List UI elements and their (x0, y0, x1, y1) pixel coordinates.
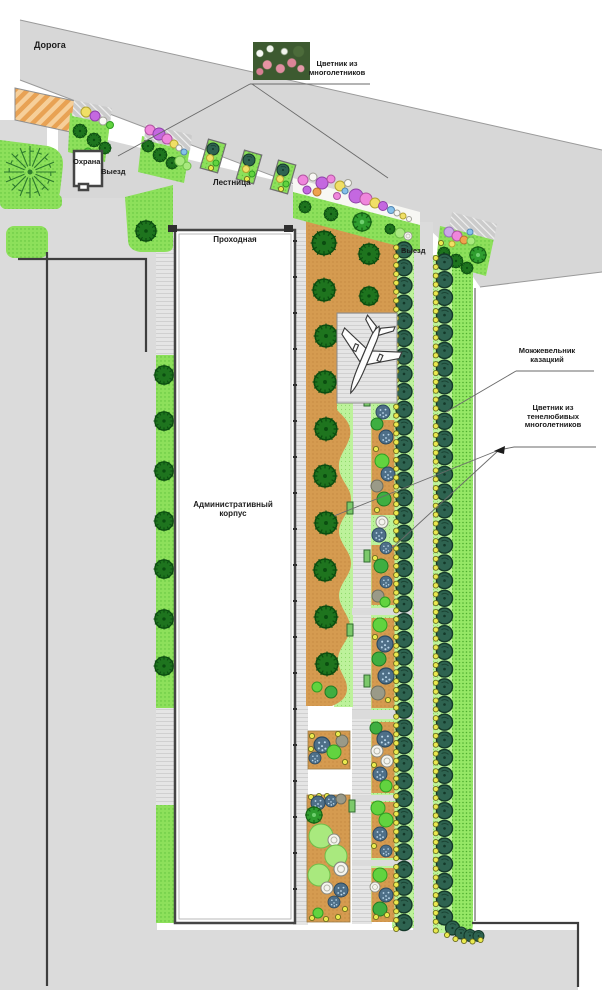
large-tree-sketch-icon (4, 146, 56, 198)
admin-building (168, 225, 295, 923)
south-pavement (0, 930, 578, 990)
label-road: Дорога (34, 40, 66, 50)
label-admin-building: Административный корпус (187, 500, 279, 518)
perennial-flowers-photo (253, 42, 310, 80)
caption-perennial-bed: Цветник из многолетников (303, 60, 371, 77)
lawn-strip-b (6, 226, 48, 258)
label-checkpoint: Проходная (190, 235, 280, 244)
label-exit-west: Выезд (101, 168, 125, 177)
label-stairs: Лестница (213, 178, 251, 187)
west-walkway-b (156, 708, 174, 805)
east-drive (413, 222, 433, 934)
building-west-lawn-b (156, 805, 174, 923)
yard-pavement (47, 198, 157, 932)
east-lawn-strip (452, 262, 473, 937)
caption-juniper: Можжевельник казацкий (508, 347, 586, 364)
label-security-post: Охрана (73, 158, 100, 167)
west-walkway-a (156, 238, 174, 355)
caption-shade-bed: Цветник из тенелюбивых многолетников (512, 404, 594, 430)
label-exit-east: Выезд (401, 247, 425, 256)
site-plan-canvas (0, 0, 602, 990)
landscape-plan: Дорога Цветник из многолетников Охрана В… (0, 0, 602, 990)
building-west-lawn-a (156, 355, 174, 708)
lawn-strip-a (0, 194, 62, 209)
